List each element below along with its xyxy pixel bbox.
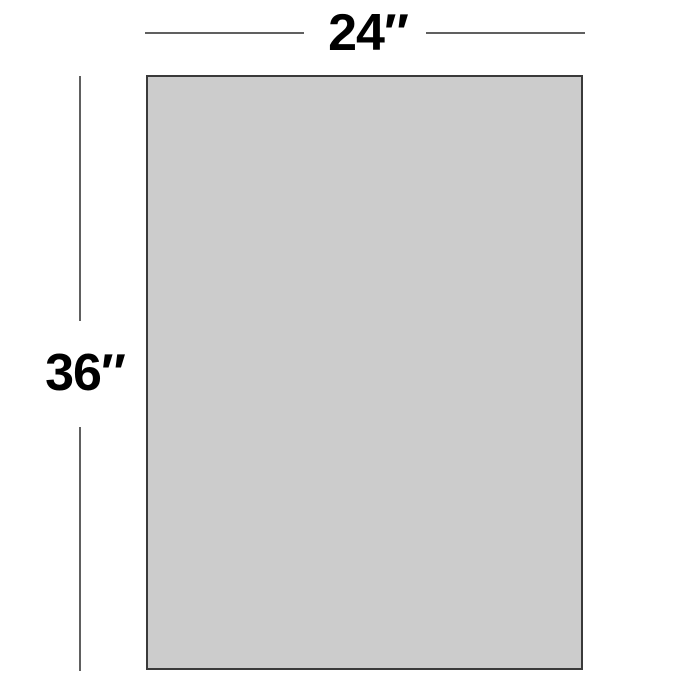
rectangle bbox=[146, 75, 583, 670]
width-dimension: 24″ bbox=[145, 0, 585, 66]
width-label: 24″ bbox=[328, 7, 408, 59]
height-label: 36″ bbox=[45, 347, 125, 399]
height-dimension-line-bottom bbox=[79, 427, 81, 672]
diagram-canvas: 24″ 36″ bbox=[0, 0, 700, 700]
height-dimension-line-top bbox=[79, 76, 81, 321]
height-dimension: 36″ bbox=[79, 76, 81, 671]
width-dimension-line-right bbox=[426, 32, 585, 34]
width-dimension-line-left bbox=[145, 32, 304, 34]
